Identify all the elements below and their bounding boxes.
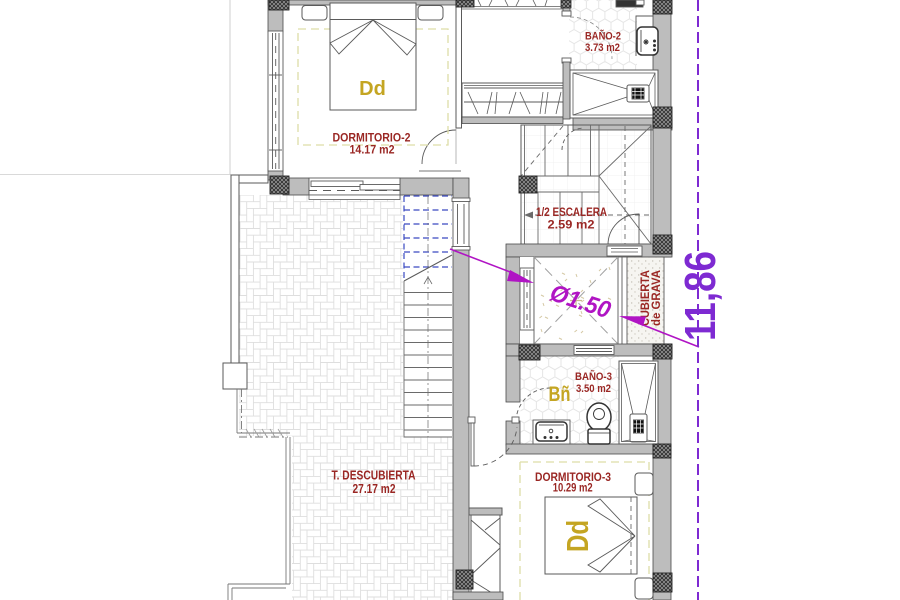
svg-text:3.73 m2: 3.73 m2 <box>585 42 620 54</box>
svg-text:14.17 m2: 14.17 m2 <box>350 143 395 157</box>
svg-text:Dd: Dd <box>359 78 386 100</box>
svg-text:27.17 m2: 27.17 m2 <box>353 481 396 496</box>
svg-text:Dd: Dd <box>560 520 595 552</box>
svg-text:Bñ: Bñ <box>549 383 571 406</box>
svg-text:11,86: 11,86 <box>676 251 725 341</box>
svg-text:BAÑO-2: BAÑO-2 <box>585 30 621 43</box>
svg-text:10.29 m2: 10.29 m2 <box>553 481 593 495</box>
svg-text:BAÑO-3: BAÑO-3 <box>575 370 612 383</box>
svg-text:de GRAVA: de GRAVA <box>649 270 663 326</box>
svg-text:2.59 m2: 2.59 m2 <box>548 218 595 232</box>
svg-text:3.50 m2: 3.50 m2 <box>576 383 611 395</box>
